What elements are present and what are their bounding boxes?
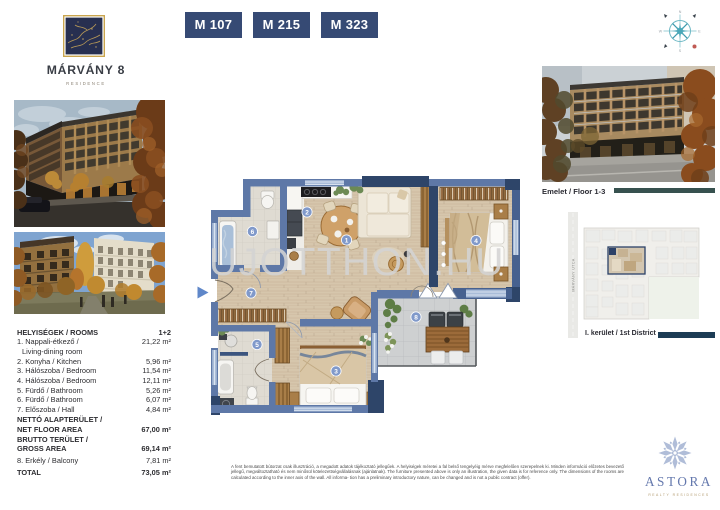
svg-text:8: 8 bbox=[414, 314, 418, 321]
svg-text:W: W bbox=[659, 29, 663, 33]
svg-text:6: 6 bbox=[251, 229, 255, 236]
svg-text:3: 3 bbox=[334, 368, 338, 375]
svg-text:2: 2 bbox=[305, 209, 309, 216]
svg-text:UJOTTHON.HU: UJOTTHON.HU bbox=[209, 241, 505, 284]
svg-text:N: N bbox=[679, 10, 682, 14]
svg-text:7: 7 bbox=[249, 290, 253, 297]
svg-text:S: S bbox=[679, 49, 682, 53]
svg-text:5: 5 bbox=[255, 342, 259, 349]
svg-text:MÁRVÁNY UTCA: MÁRVÁNY UTCA bbox=[572, 258, 576, 291]
svg-text:E: E bbox=[698, 29, 701, 33]
